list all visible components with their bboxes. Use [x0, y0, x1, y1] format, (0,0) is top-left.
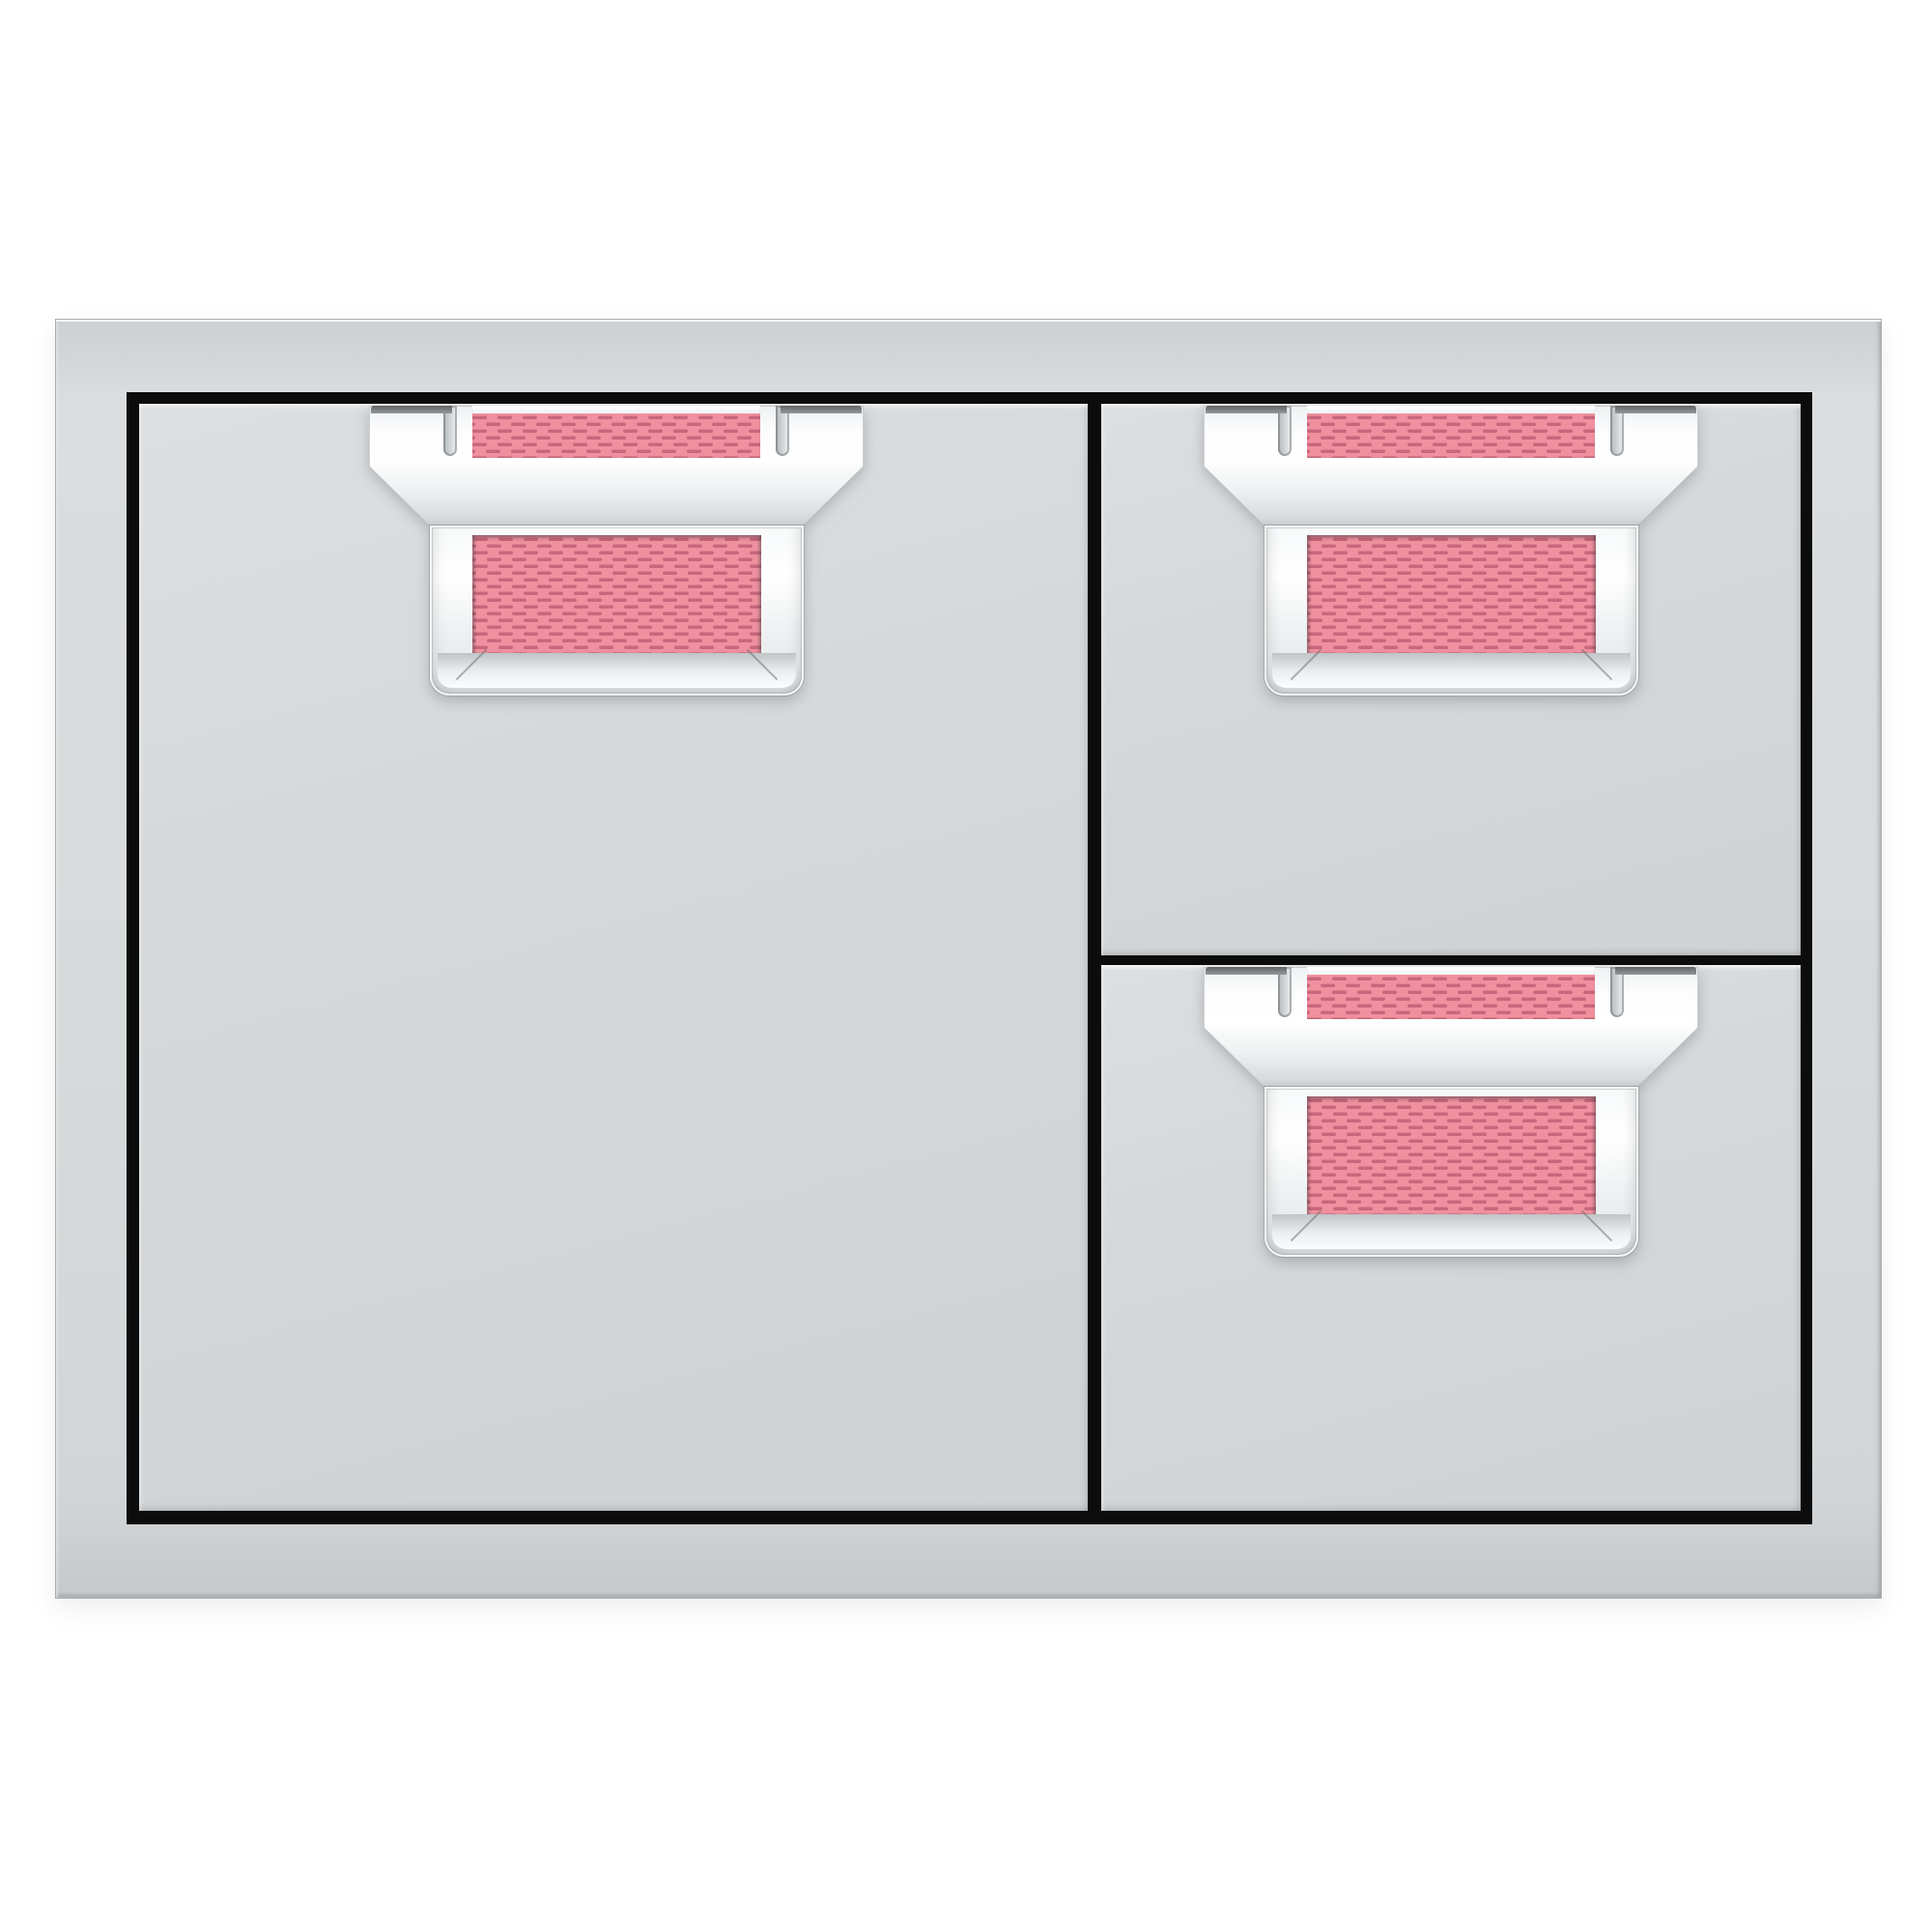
handle-accent-panel — [1307, 1096, 1596, 1216]
upper-drawer-handle — [1204, 406, 1698, 696]
product-photo — [0, 0, 1932, 1932]
bevel-miter-seam-left — [456, 649, 488, 681]
left-door-panel — [139, 404, 1088, 1511]
panel-recess-gap — [127, 392, 1812, 1524]
weave-texture — [1306, 975, 1596, 1020]
handle-hook-right — [1615, 967, 1696, 975]
handle-accent-strip — [469, 406, 764, 462]
handle-accent-panel — [1307, 535, 1596, 655]
handle-hook-right — [781, 406, 862, 413]
lower-drawer-handle — [1204, 967, 1698, 1257]
weave-texture — [471, 413, 761, 459]
door-handle — [369, 406, 864, 696]
handle-hook-left — [371, 406, 452, 413]
handle-hook-right — [1615, 406, 1696, 413]
bevel-miter-seam-left — [1291, 1210, 1322, 1242]
weave-texture — [1307, 1096, 1596, 1216]
handle-bracket — [1264, 1087, 1638, 1257]
upper-drawer-panel — [1101, 404, 1801, 955]
handle-hook-left — [1206, 967, 1287, 975]
handle-bracket-bevel — [438, 653, 796, 688]
handle-bracket-bevel — [1272, 653, 1631, 688]
handle-accent-strip — [1303, 967, 1599, 1023]
cabinet-frame — [55, 319, 1882, 1599]
bevel-miter-seam-left — [1291, 649, 1322, 681]
weave-texture — [1306, 413, 1596, 459]
weave-texture — [472, 535, 761, 655]
handle-accent-panel — [472, 535, 761, 655]
weave-texture — [1307, 535, 1596, 655]
bevel-miter-seam-right — [747, 649, 779, 681]
handle-hook-left — [1206, 406, 1287, 413]
lower-drawer-panel — [1101, 965, 1801, 1511]
handle-bracket — [1264, 526, 1638, 696]
handle-bracket-bevel — [1272, 1214, 1631, 1249]
bevel-miter-seam-right — [1581, 649, 1613, 681]
handle-accent-strip — [1303, 406, 1599, 462]
bevel-miter-seam-right — [1581, 1210, 1613, 1242]
handle-bracket — [430, 526, 804, 696]
